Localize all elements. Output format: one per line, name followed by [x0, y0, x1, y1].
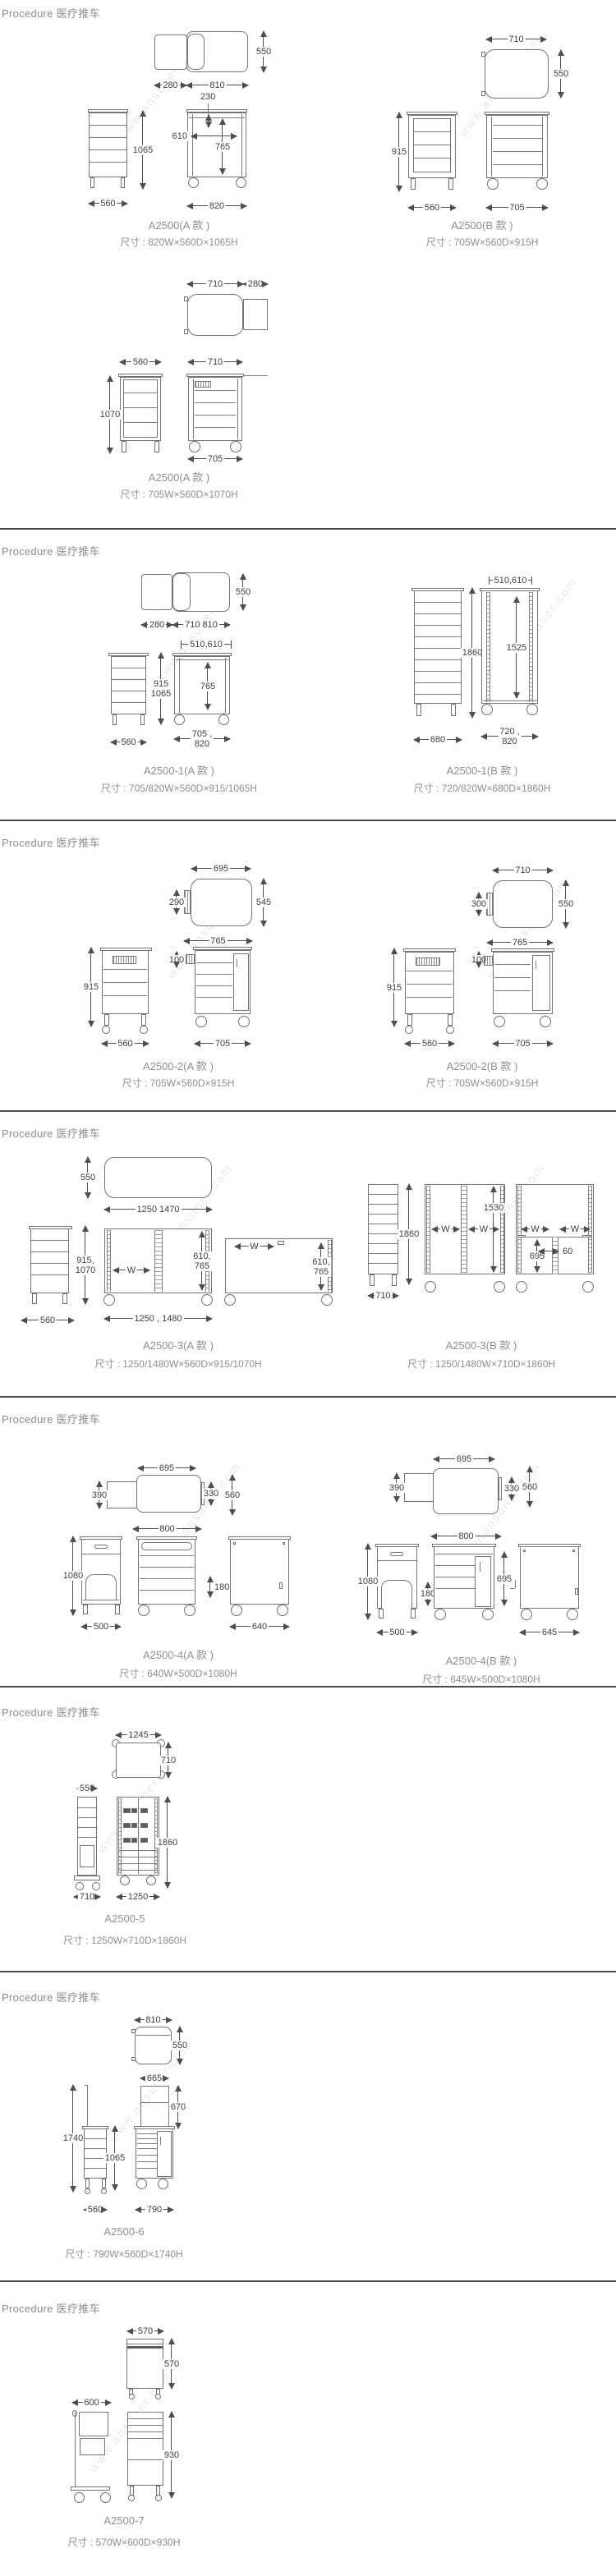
- dimension-label: 1070: [99, 410, 122, 420]
- model-size: 尺寸 : 705W×560D×1070H: [56, 487, 302, 501]
- drawing-shape: [499, 1477, 502, 1500]
- dimension-label: 550: [234, 587, 252, 597]
- drawing-shape: [179, 658, 180, 713]
- caster-wheel: [405, 1026, 413, 1034]
- caster-wheel: [195, 1016, 207, 1027]
- model-size: 尺寸 : 705W×560D×915H: [359, 235, 605, 249]
- drawing-shape: [90, 149, 126, 150]
- drawing-shape: [237, 959, 237, 967]
- model-name: A2500-1(B 款 ): [408, 762, 556, 778]
- dim-side-width: 800: [133, 1528, 201, 1529]
- dim-inner-height: 765: [207, 663, 208, 709]
- dimension-label: 560: [99, 199, 117, 209]
- dim-shelf-depth: 390: [99, 1481, 99, 1508]
- caster-wheel: [567, 1609, 578, 1620]
- dim-gap-label: 230: [199, 92, 217, 102]
- dim-ext-width: 280: [154, 85, 186, 85]
- dimension-label: 560: [119, 737, 137, 747]
- dim-top-width: 710: [493, 870, 553, 870]
- caster-wheel: [188, 177, 199, 188]
- drawing-shape: [140, 1808, 148, 1813]
- dimension-label: 1250: [126, 1892, 149, 1902]
- caster-wheel: [102, 1026, 110, 1034]
- dimension-label: 550: [79, 1173, 97, 1182]
- cart-leg: [448, 178, 453, 190]
- drawing-shape: [529, 592, 533, 702]
- drawing-shape: [124, 393, 157, 393]
- dimension-label: 550: [171, 2041, 189, 2050]
- drawing-shape: [119, 1863, 157, 1864]
- dim-inner-height: 610, 765: [320, 1243, 321, 1290]
- drawing-shape: [187, 294, 243, 336]
- drawing-shape: [368, 1184, 398, 1274]
- caster-wheel: [129, 2394, 135, 2399]
- drawing-shape: [475, 1556, 491, 1607]
- drawing-shape: [137, 2155, 157, 2156]
- dimension-label: 100: [168, 954, 186, 964]
- cart-leg: [379, 1609, 384, 1619]
- dimension-label: 560: [39, 1316, 57, 1325]
- drawing-shape: [131, 1823, 137, 1828]
- dimension-label: 695: [158, 1463, 176, 1473]
- drawing-shape: [140, 1578, 194, 1579]
- drawing-shape: [184, 329, 188, 334]
- dimension-label: 600: [82, 2398, 100, 2408]
- drawing-shape: [237, 379, 238, 439]
- drawing-shape: [107, 1230, 111, 1292]
- dimension-label: 1860: [398, 1229, 421, 1239]
- section-a2500-7: Procedure 医疗推车 www.ansuner.com 570 570 6…: [0, 2280, 616, 2576]
- dimension-label: 1860: [461, 648, 484, 658]
- cart-leg: [104, 1014, 109, 1026]
- dim-width: 790: [136, 2209, 173, 2210]
- drawing-shape: [80, 2438, 105, 2455]
- caster-wheel: [277, 1605, 288, 1616]
- drawing-shape: [128, 2425, 163, 2426]
- drawing-shape: [582, 1235, 591, 1237]
- dimension-label: 665: [145, 2073, 163, 2083]
- drawing-shape: [123, 1808, 131, 1813]
- model-name: A2500-7: [50, 2514, 198, 2527]
- dimension-label: 705: [513, 1039, 531, 1049]
- dimension-label: 710: [206, 357, 224, 367]
- drawing-shape: [415, 602, 461, 603]
- dim-w: W: [522, 1228, 549, 1229]
- drawing-shape: [480, 1562, 480, 1572]
- dim-top-width: 710: [486, 39, 546, 39]
- drawing-shape: [407, 984, 453, 985]
- drawing-shape: [140, 2102, 168, 2103]
- drawing-shape: [112, 691, 145, 691]
- dim-top-width: 710 810: [172, 624, 230, 625]
- drawing-shape: [128, 2459, 163, 2460]
- dimension-label: 680: [429, 735, 447, 745]
- dim-top-width: 570: [127, 2330, 163, 2331]
- dim-height: 915: [90, 948, 91, 1026]
- dim-w: W: [432, 1228, 459, 1229]
- dim-depth: 500: [377, 1632, 417, 1632]
- caster-wheel: [487, 178, 499, 190]
- dim-width: 820: [187, 205, 246, 206]
- caster-wheel: [184, 1605, 195, 1616]
- dim-ext-width: 280: [141, 624, 172, 625]
- dim-height: 915, 1070: [85, 1226, 85, 1304]
- drawing-shape: [369, 1263, 398, 1264]
- dimension-label: 1250 , 1480: [132, 1314, 183, 1324]
- dimension-label: W: [478, 1224, 490, 1234]
- dimension-label: 610, 765: [310, 1256, 331, 1276]
- drawing-shape: [184, 296, 188, 301]
- model-size: 尺寸 : 705W×560D×915H: [359, 1076, 605, 1090]
- drawing-shape: [523, 1550, 526, 1552]
- dimension-label: 765: [209, 936, 227, 946]
- drawing-shape: [111, 656, 146, 714]
- drawing-shape: [407, 971, 453, 971]
- dimension-label: 705 , 820: [191, 729, 214, 749]
- drawing-shape: [378, 1560, 416, 1561]
- drawing-shape: [414, 158, 450, 158]
- drawing-shape: [494, 977, 531, 978]
- drawing-shape: [193, 379, 194, 439]
- model-name: A2500-2(A 款 ): [104, 1058, 252, 1073]
- drawing-shape: [113, 956, 136, 964]
- model-name: A2500(A 款 ): [105, 217, 253, 232]
- dimension-label: 330: [202, 1489, 220, 1499]
- drawing-shape: [78, 1807, 96, 1808]
- drawing-shape: [112, 702, 145, 703]
- caster-wheel: [218, 714, 229, 725]
- dimension-label: 390: [388, 1482, 406, 1492]
- drawing-shape: [426, 1186, 430, 1273]
- dimension-label: 330: [503, 1484, 521, 1494]
- dim-top-width: 695: [191, 868, 251, 869]
- dim-width: 705: [486, 207, 548, 208]
- caster-wheel: [236, 177, 246, 188]
- caster-wheel: [321, 1294, 333, 1306]
- dimension-label: W: [569, 1224, 581, 1234]
- dim-tray: 100: [478, 952, 479, 967]
- drawing-shape: [233, 953, 249, 1011]
- dimension-label: 765: [214, 141, 232, 151]
- drawing-shape: [415, 671, 461, 672]
- caster-wheel: [85, 2188, 90, 2194]
- dimension-label: 1080: [356, 1577, 379, 1586]
- drawing-shape: [485, 49, 549, 99]
- dim-w: W: [560, 1228, 590, 1229]
- dim-depth: 600: [72, 2402, 111, 2403]
- cart-leg: [154, 441, 159, 452]
- dimension-label: 695: [212, 864, 230, 874]
- dimension-label: W: [248, 1242, 260, 1251]
- dim-top-width: 1250 1470: [104, 1209, 212, 1210]
- dimension-label: 560: [131, 357, 149, 367]
- model-name: A2500-1(A 款 ): [105, 762, 253, 778]
- section-title: Procedure 医疗推车: [2, 2300, 100, 2316]
- dim-inner-width: 510,610: [489, 580, 532, 581]
- dim-height: 915: [393, 948, 394, 1026]
- drawing-shape: [140, 2086, 168, 2087]
- dim-w: W: [235, 1246, 274, 1247]
- dimension-label: 710 810: [183, 620, 219, 630]
- dim-top-depth: 550: [565, 880, 566, 928]
- dimension-label: 550: [557, 899, 575, 909]
- dimension-label: 670: [169, 2102, 187, 2112]
- drawing-shape: [141, 574, 172, 610]
- drawing-shape: [191, 879, 252, 926]
- drawing-shape: [140, 1555, 194, 1556]
- drawing-shape: [123, 379, 158, 438]
- dimension-label: 810: [144, 2015, 162, 2025]
- drawing-shape: [140, 2086, 141, 2128]
- cart-leg: [121, 177, 125, 188]
- drawing-shape: [74, 1876, 100, 1880]
- model-size: 尺寸 : 1250/1480W×710D×1860H: [358, 1357, 605, 1371]
- drawing-shape: [415, 648, 461, 649]
- dim-top-depth: 550: [242, 574, 243, 610]
- drawing-shape: [137, 2161, 157, 2162]
- caster-wheel: [100, 2492, 111, 2503]
- cart-leg: [392, 1274, 397, 1286]
- section-a2500-1: Procedure 医疗推车 www.ansuner.com www.ansun…: [0, 528, 616, 820]
- dim-height: 930: [171, 2412, 172, 2498]
- cart-leg: [411, 1609, 416, 1619]
- drawing-shape: [381, 1580, 412, 1609]
- dimension-label: 710: [78, 1892, 96, 1902]
- caster-wheel: [155, 2394, 161, 2399]
- dimension-label: 930: [163, 2450, 181, 2459]
- drawing-shape: [85, 2168, 106, 2169]
- drawing-shape: [552, 1237, 559, 1274]
- drawing-shape: [85, 1574, 117, 1600]
- model-name: A2500(A 款 ): [105, 469, 253, 484]
- drawing-shape: [435, 1565, 475, 1566]
- dimension-label: 800: [457, 1531, 475, 1541]
- dimension-label: 1860: [156, 1837, 179, 1847]
- drawing-shape: [85, 2138, 106, 2139]
- caster-wheel: [103, 1294, 115, 1306]
- dim-height: 1860: [167, 1797, 168, 1888]
- dimension-label: 290: [168, 897, 186, 907]
- dim-height: 1740: [72, 2085, 73, 2192]
- drawing-shape: [160, 2137, 161, 2145]
- dim-inner-width: 510,610: [181, 644, 232, 645]
- drawing-shape: [136, 1475, 201, 1513]
- dim-handle: 290: [176, 890, 177, 914]
- cart-leg: [85, 2179, 90, 2188]
- dim-width: 705: [493, 1043, 553, 1044]
- dimension-label: 710: [159, 1755, 177, 1765]
- drawing-shape: [369, 1233, 398, 1234]
- drawing-shape: [243, 299, 268, 330]
- dim-height: 1080: [72, 1536, 73, 1615]
- drawing-shape: [83, 1600, 119, 1600]
- drawing-shape: [154, 34, 187, 70]
- drawing-shape: [279, 1582, 283, 1589]
- caster-wheel: [494, 1016, 505, 1027]
- section-a2500-3: Procedure 医疗推车 www.ansuner.com www.ansun…: [0, 1110, 616, 1396]
- dim-depth: 560: [84, 2209, 107, 2210]
- caster-wheel: [521, 1609, 532, 1620]
- dimension-label: 915, 1070: [74, 1255, 97, 1274]
- drawing-shape: [137, 2143, 157, 2144]
- dim-width: 1250: [117, 1896, 159, 1897]
- drawing-shape: [195, 402, 236, 403]
- drawing-shape: [225, 658, 226, 713]
- section-a2500: Procedure 医疗推车 www.ansuner.com www.ansun…: [0, 0, 616, 528]
- dim-top-depth: 550: [263, 31, 264, 72]
- dimension-label: 280: [148, 620, 166, 630]
- dimension-label: W: [529, 1224, 540, 1234]
- dimension-label: 560: [521, 1481, 539, 1491]
- dimension-label: 720 , 820: [498, 727, 521, 746]
- drawing-shape: [520, 1546, 579, 1609]
- drawing-shape: [415, 625, 461, 626]
- dim-inner-width: 610: [191, 135, 237, 136]
- cart-leg: [102, 2179, 106, 2188]
- dim-depth: 560: [102, 1043, 149, 1044]
- dim-tray: 100: [176, 952, 177, 967]
- drawing-shape: [241, 114, 242, 176]
- drawing-shape: [575, 1588, 578, 1595]
- dimension-label: 300: [470, 899, 488, 909]
- dimension-label: 705: [206, 454, 224, 464]
- section-title: Procedure 医疗推车: [2, 1704, 100, 1720]
- caster-wheel: [201, 1294, 213, 1306]
- model-size: 尺寸 : 705/820W×560D×915/1065H: [56, 781, 302, 795]
- cart-leg: [32, 1293, 37, 1304]
- drawing-shape: [78, 1827, 96, 1828]
- cart-leg: [451, 704, 456, 716]
- dimension-label: 1065: [131, 145, 154, 154]
- dimension-label: 510,610: [493, 576, 529, 585]
- dimension-label: 1525: [505, 642, 528, 652]
- drawing-shape: [87, 2085, 88, 2128]
- drawing-shape: [515, 1580, 516, 1588]
- dim-width: 705: [195, 1043, 251, 1044]
- drawing-shape: [112, 668, 145, 668]
- drawing-shape: [196, 985, 232, 986]
- drawing-shape: [369, 1194, 398, 1195]
- dimension-label: 60: [561, 1247, 574, 1256]
- drawing-shape: [196, 997, 232, 998]
- caster-wheel: [425, 1281, 436, 1293]
- catalog-page: Procedure 医疗推车 www.ansuner.com www.ansun…: [0, 0, 616, 2576]
- drawing-shape: [140, 1567, 194, 1568]
- dimension-label: 550: [552, 69, 570, 79]
- dim-width: 640: [230, 1626, 289, 1627]
- dimension-label: 710: [507, 34, 525, 44]
- drawing-shape: [71, 2486, 110, 2491]
- model-size: 尺寸 : 640W×500D×1080H: [55, 1666, 301, 1680]
- drawing-shape: [78, 1817, 96, 1818]
- drawing-shape: [192, 114, 193, 176]
- drawing-shape: [186, 954, 195, 964]
- caster-wheel: [231, 1605, 242, 1616]
- dim-height: 1070: [109, 376, 110, 453]
- drawing-shape: [140, 1823, 148, 1828]
- dimension-label: 570: [136, 2326, 154, 2336]
- drawing-shape: [195, 427, 236, 428]
- dim-gap: [208, 115, 209, 127]
- drawing-shape: [137, 2168, 157, 2169]
- dimension-label: 560: [86, 2205, 104, 2215]
- dim-height: 1860: [471, 588, 472, 718]
- dim-cabinet-height: 1065: [114, 2126, 115, 2190]
- model-size: 尺寸 : 1250W×710D×1860H: [2, 1933, 248, 1947]
- drawing-shape: [123, 1838, 131, 1843]
- caster-wheel: [128, 2495, 135, 2501]
- drawing-shape: [119, 1850, 157, 1851]
- dim-depth: 560: [111, 742, 146, 742]
- drawing-shape: [572, 1550, 575, 1552]
- model-size: 尺寸 : 705W×560D×915H: [55, 1076, 301, 1090]
- cart-leg: [407, 1014, 412, 1026]
- dim-width: 1250 , 1480: [104, 1318, 212, 1319]
- dimension-label: 1245: [126, 1730, 149, 1740]
- model-name: A2500-6: [50, 2225, 198, 2238]
- drawing-shape: [31, 1263, 68, 1264]
- dimension-label: 790: [145, 2205, 163, 2215]
- drawing-shape: [128, 2418, 163, 2419]
- dimension-label: 560: [421, 1039, 439, 1049]
- drawing-shape: [157, 2131, 172, 2177]
- drawing-shape: [494, 990, 531, 991]
- drawing-shape: [79, 2412, 108, 2436]
- drawing-shape: [85, 2085, 88, 2086]
- dim-top-depth: 545: [263, 879, 264, 926]
- drawing-shape: [140, 1838, 148, 1843]
- drawing-shape: [369, 1224, 398, 1224]
- caster-wheel: [482, 1609, 494, 1620]
- dim-depth: 560: [405, 1043, 454, 1044]
- model-name: A2500-3(A 款 ): [104, 1337, 252, 1352]
- drawing-shape: [414, 590, 462, 704]
- dimension-label: 280: [246, 279, 264, 289]
- drawing-shape: [493, 164, 542, 165]
- section-title: Procedure 医疗推车: [2, 1989, 100, 2004]
- drawing-shape: [141, 1542, 192, 1550]
- dim-column: 60: [539, 1251, 559, 1251]
- caster-wheel: [140, 1026, 148, 1034]
- dim-ext-width: 280: [243, 283, 268, 284]
- dimension-label: 1250 1470: [136, 1205, 182, 1215]
- cart-leg: [83, 1605, 88, 1614]
- caster-wheel: [74, 2492, 85, 2503]
- model-size: 尺寸 : 790W×560D×1740H: [1, 2247, 247, 2261]
- dimension-label: 550: [78, 1784, 96, 1793]
- drawing-shape: [94, 1545, 108, 1549]
- dimension-label: 705: [214, 1039, 232, 1049]
- section-title: Procedure 医疗推车: [2, 5, 100, 21]
- section-title: Procedure 医疗推车: [2, 1125, 100, 1141]
- drawing-shape: [414, 131, 450, 132]
- dimension-label: 610: [171, 131, 189, 141]
- drawing-shape: [89, 112, 127, 177]
- dim-width: 705 , 820: [174, 738, 230, 739]
- cart-leg: [370, 1274, 375, 1286]
- dim-top-depth: 550: [179, 2027, 180, 2064]
- drawing-shape: [491, 117, 492, 177]
- cart-leg: [122, 441, 126, 452]
- dim-inner-height: 765: [222, 119, 223, 174]
- drawing-shape: [435, 1588, 475, 1589]
- caster-wheel: [582, 1281, 594, 1293]
- drawing-shape: [369, 1204, 398, 1205]
- dimension-label: 710: [513, 866, 531, 875]
- dimension-label: 810: [208, 80, 226, 90]
- dimension-label: 915: [82, 982, 100, 992]
- section-a2500-5: Procedure 医疗推车 www.ansuner.com 1245 710 …: [0, 1686, 616, 1971]
